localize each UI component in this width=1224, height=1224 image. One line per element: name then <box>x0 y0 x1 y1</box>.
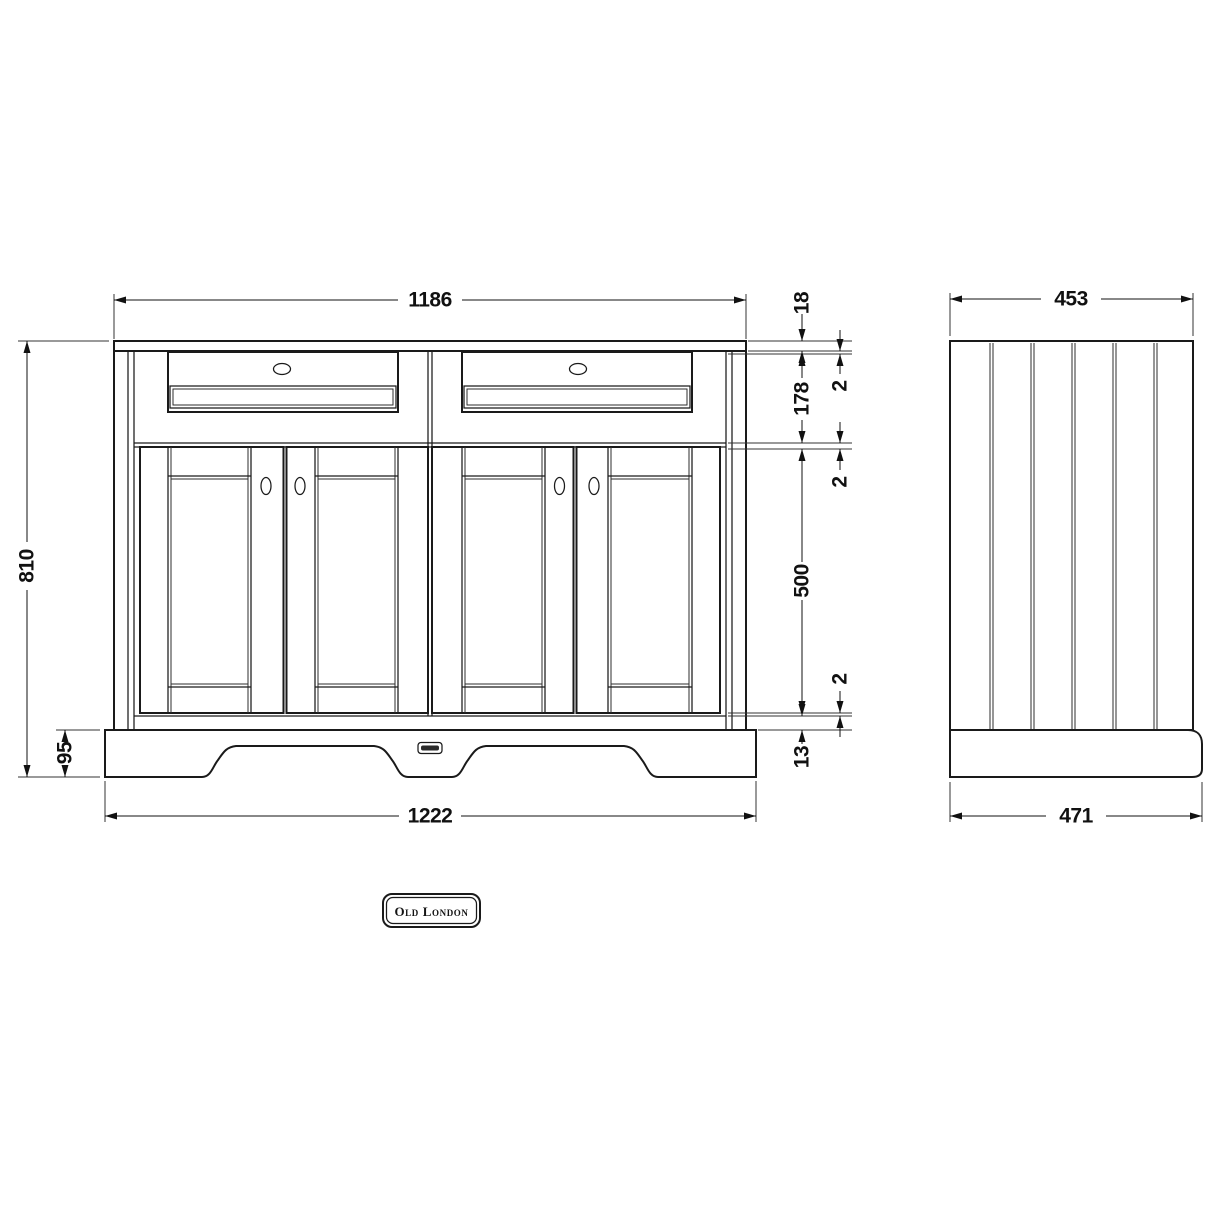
cabinet-door <box>140 447 284 713</box>
right-leg <box>726 351 746 730</box>
dim-bottom-rail: 13 <box>791 694 814 768</box>
dim-label: 2 <box>829 380 852 391</box>
drawing-page: 1186 18 2 178 <box>0 0 1224 1224</box>
dim-label: 500 <box>791 564 814 598</box>
dim-door-section: 500 <box>791 449 814 713</box>
dim-plinth-height: 95 <box>54 730 101 777</box>
brand-logo: Old London <box>383 894 480 927</box>
dim-label: 95 <box>54 741 77 764</box>
dim-label: 178 <box>791 381 814 415</box>
door-panel <box>608 447 692 713</box>
drawer-handle-icon <box>274 364 291 375</box>
cabinet-door <box>432 447 574 713</box>
dim-label: 471 <box>1059 805 1093 828</box>
dim-label: 1222 <box>408 805 453 828</box>
side-plinth <box>950 730 1202 777</box>
dim-label: 13 <box>791 746 814 768</box>
drawer-groove <box>464 386 690 408</box>
door-panel <box>315 447 398 713</box>
dim-width-top: 1186 <box>114 289 746 340</box>
drawer-front-right <box>462 352 692 412</box>
front-view <box>105 341 756 777</box>
plank-groove <box>1154 343 1157 729</box>
drawer-handle-icon <box>570 364 587 375</box>
dim-width-bottom: 1222 <box>105 781 756 828</box>
plank-groove <box>1113 343 1116 729</box>
plank-groove <box>1072 343 1075 729</box>
drawer-front-left <box>168 352 398 412</box>
dim-label: 2 <box>829 673 852 684</box>
dim-height-total: 810 <box>16 341 110 777</box>
dim-label: 453 <box>1054 288 1088 311</box>
left-leg <box>114 351 134 730</box>
dim-depth-bottom: 471 <box>950 782 1202 828</box>
dim-label: 810 <box>16 549 39 583</box>
brand-logo-text: Old London <box>394 904 468 919</box>
dim-gap-middle: 2 <box>829 422 852 488</box>
dim-label: 2 <box>829 476 852 487</box>
countertop <box>114 341 746 351</box>
dim-drawer-section: 178 <box>791 354 814 443</box>
cabinet-door <box>577 447 721 713</box>
dim-gap-top: 2 <box>829 330 852 392</box>
technical-drawing: 1186 18 2 178 <box>0 0 1224 1224</box>
cabinet-door <box>287 447 429 713</box>
door-handle-icon <box>295 478 305 495</box>
door-handle-icon <box>589 478 599 495</box>
door-panel <box>168 447 251 713</box>
plank-groove <box>990 343 993 729</box>
plank-groove <box>1031 343 1034 729</box>
door-handle-icon <box>555 478 565 495</box>
side-view <box>950 341 1202 777</box>
dim-gap-bottom: 2 <box>829 673 852 737</box>
drawer-groove <box>170 386 396 408</box>
door-panel <box>462 447 545 713</box>
dim-depth-top: 453 <box>950 288 1193 337</box>
dim-label: 1186 <box>408 289 452 312</box>
dim-label: 18 <box>791 291 814 314</box>
door-handle-icon <box>261 478 271 495</box>
